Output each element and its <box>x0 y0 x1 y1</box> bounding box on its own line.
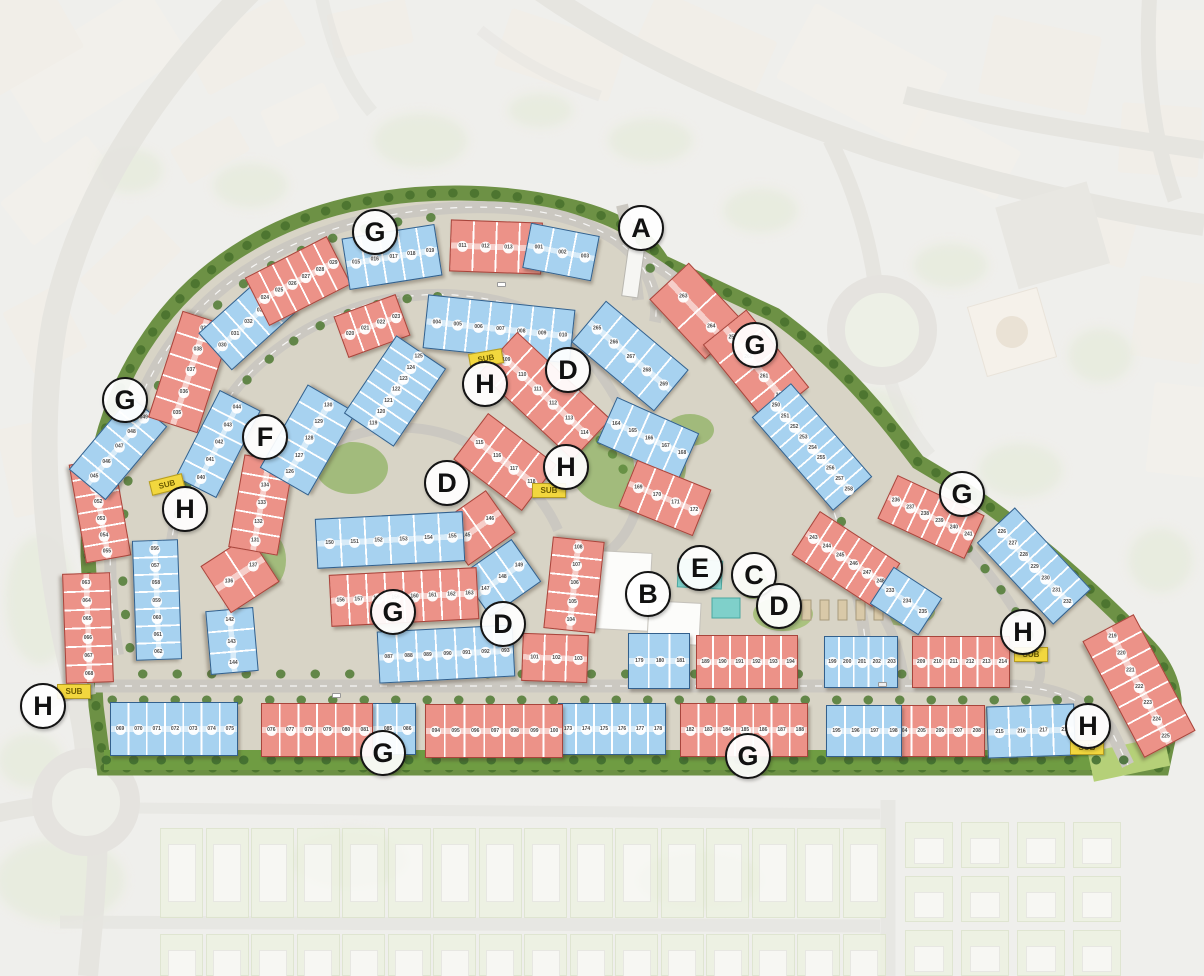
unit-number: 164 <box>611 418 622 429</box>
unit-number: 133 <box>256 499 267 510</box>
unit-number: 047 <box>113 442 124 453</box>
zone-badge-d-top: D <box>545 347 591 393</box>
unit-number: 192 <box>751 657 762 668</box>
unit-number: 096 <box>470 726 481 737</box>
unit-number: 058 <box>151 578 162 589</box>
unit-number: 266 <box>609 337 620 348</box>
unit-number: 195 <box>831 726 842 737</box>
unit-number: 107 <box>571 560 582 571</box>
unit-number: 155 <box>447 531 458 542</box>
zone-badge-d-center: D <box>480 601 526 647</box>
unit-number: 210 <box>932 657 943 668</box>
unit-number: 087 <box>383 651 394 662</box>
unit-number: 256 <box>825 463 836 474</box>
unit-number: 076 <box>266 725 277 736</box>
unit-number: 169 <box>633 482 644 493</box>
unit-number: 265 <box>592 323 603 334</box>
unit-number: 228 <box>1018 550 1029 561</box>
unit-number: 165 <box>627 426 638 437</box>
unit-number: 021 <box>360 323 371 334</box>
zone-badge-h-bottom-right: H <box>1065 703 1111 749</box>
unit-number: 114 <box>579 428 590 439</box>
unit-number: 171 <box>670 497 681 508</box>
unit-number: 091 <box>461 647 472 658</box>
car <box>332 693 341 698</box>
unit-number: 004 <box>431 317 442 328</box>
unit-number: 224 <box>1152 715 1163 726</box>
unit-number: 055 <box>102 547 113 558</box>
unit-number: 241 <box>963 529 974 540</box>
unit-number: 227 <box>1007 538 1018 549</box>
unit-number: 255 <box>816 453 827 464</box>
unit-number: 137 <box>247 560 258 571</box>
unit-number: 132 <box>252 517 263 528</box>
unit-number: 005 <box>452 319 463 330</box>
unit-number: 180 <box>655 656 666 667</box>
unit-number: 269 <box>658 379 669 390</box>
zone-badge-g-top: G <box>352 209 398 255</box>
unit-number: 065 <box>82 614 93 625</box>
building-block-094-100: 094095096097098099100 <box>425 704 563 758</box>
unit-number: 170 <box>651 489 662 500</box>
unit-number: 226 <box>996 526 1007 537</box>
unit-number: 198 <box>888 726 899 737</box>
unit-number: 010 <box>558 330 569 341</box>
unit-number: 066 <box>83 633 94 644</box>
unit-number: 201 <box>857 657 868 668</box>
building-block-150-155: 150151152153154155 <box>315 511 465 569</box>
zone-badge-d-mid-left: D <box>424 460 470 506</box>
unit-number: 245 <box>835 550 846 561</box>
unit-number: 163 <box>464 588 475 599</box>
unit-number: 233 <box>885 586 896 597</box>
unit-number: 106 <box>569 579 580 590</box>
zone-badge-e: E <box>677 545 723 591</box>
unit-number: 166 <box>643 433 654 444</box>
unit-number: 252 <box>789 421 800 432</box>
unit-number: 217 <box>1037 725 1048 736</box>
unit-number: 239 <box>934 515 945 526</box>
unit-number: 057 <box>150 561 161 572</box>
unit-number: 130 <box>322 400 333 411</box>
unit-number: 094 <box>430 726 441 737</box>
unit-number: 097 <box>490 726 501 737</box>
unit-number: 268 <box>642 365 653 376</box>
unit-number: 073 <box>188 724 199 735</box>
unit-number: 254 <box>807 442 818 453</box>
zone-badge-h-mid: H <box>543 444 589 490</box>
unit-number: 188 <box>794 725 805 736</box>
unit-number: 250 <box>771 401 782 412</box>
building-block-189-194: 189190191192193194 <box>696 635 798 689</box>
unit-number: 219 <box>1107 631 1118 642</box>
unit-number: 225 <box>1161 731 1172 742</box>
unit-number: 184 <box>721 725 732 736</box>
unit-number: 044 <box>231 403 242 414</box>
unit-number: 024 <box>259 292 270 303</box>
unit-number: 078 <box>303 725 314 736</box>
unit-number: 095 <box>450 726 461 737</box>
zone-badge-g-upper-right: G <box>732 322 778 368</box>
unit-number: 052 <box>93 497 104 508</box>
unit-number: 191 <box>734 657 745 668</box>
unit-number: 197 <box>869 726 880 737</box>
unit-number: 261 <box>759 371 770 382</box>
unit-number: 069 <box>115 724 126 735</box>
unit-number: 244 <box>821 541 832 552</box>
unit-number: 161 <box>427 590 438 601</box>
unit-number: 061 <box>153 630 164 641</box>
unit-number: 147 <box>479 584 490 595</box>
unit-number: 077 <box>285 725 296 736</box>
kids-pool <box>712 598 740 618</box>
unit-number: 041 <box>204 455 215 466</box>
unit-number: 214 <box>997 657 1008 668</box>
building-block-179-181: 179180181 <box>628 633 690 689</box>
unit-number: 134 <box>259 480 270 491</box>
unit-number: 029 <box>328 258 339 269</box>
unit-number: 156 <box>335 595 346 606</box>
unit-number: 126 <box>284 467 295 478</box>
unit-number: 027 <box>300 272 311 283</box>
unit-number: 173 <box>563 724 574 735</box>
unit-number: 207 <box>953 726 964 737</box>
unit-number: 148 <box>496 572 507 583</box>
unit-number: 237 <box>905 502 916 513</box>
building-block-076-081: 076077078079080081 <box>261 703 373 757</box>
unit-number: 022 <box>375 317 386 328</box>
unit-number: 009 <box>537 328 548 339</box>
unit-number: 162 <box>446 589 457 600</box>
unit-number: 181 <box>675 656 686 667</box>
unit-number: 199 <box>827 657 838 668</box>
unit-number: 172 <box>688 504 699 515</box>
unit-number: 111 <box>532 384 543 395</box>
unit-number: 168 <box>676 448 687 459</box>
unit-number: 105 <box>567 597 578 608</box>
unit-number: 028 <box>314 265 325 276</box>
unit-number: 030 <box>217 340 228 351</box>
unit-number: 231 <box>1051 585 1062 596</box>
unit-number: 079 <box>322 725 333 736</box>
unit-number: 045 <box>88 471 99 482</box>
building-block-056-062: 056057058059060061062 <box>132 539 182 661</box>
unit-number: 129 <box>313 417 324 428</box>
building-block-142-144: 142143144 <box>205 607 258 675</box>
unit-number: 149 <box>513 560 524 571</box>
zone-badge-b: B <box>625 571 671 617</box>
unit-number: 011 <box>457 240 468 251</box>
building-block-209-214: 209210211212213214 <box>912 636 1010 688</box>
unit-number: 209 <box>916 657 927 668</box>
unit-number: 012 <box>480 241 491 252</box>
unit-number: 247 <box>861 567 872 578</box>
unit-number: 177 <box>635 724 646 735</box>
unit-number: 230 <box>1040 573 1051 584</box>
zone-badge-g-left: G <box>102 377 148 423</box>
unit-number: 067 <box>83 651 94 662</box>
unit-number: 092 <box>480 646 491 657</box>
zone-badge-g-bottom-left: G <box>360 730 406 776</box>
zone-badge-h-bottom-left: H <box>20 683 66 729</box>
unit-number: 182 <box>685 725 696 736</box>
unit-number: 183 <box>703 725 714 736</box>
unit-number: 246 <box>848 558 859 569</box>
unit-number: 125 <box>413 351 424 362</box>
building-block-215-218: 215216217218 <box>986 703 1076 758</box>
unit-number: 113 <box>564 413 575 424</box>
unit-number: 229 <box>1029 561 1040 572</box>
unit-number: 119 <box>368 418 379 429</box>
unit-number: 023 <box>391 312 402 323</box>
unit-number: 054 <box>99 530 110 541</box>
unit-number: 056 <box>150 544 161 555</box>
building-block-195-198: 195196197198 <box>826 705 902 757</box>
unit-number: 206 <box>935 726 946 737</box>
unit-number: 093 <box>500 645 511 656</box>
unit-number: 108 <box>572 542 583 553</box>
unit-number: 121 <box>383 396 394 407</box>
zone-badge-g-right: G <box>939 471 985 517</box>
unit-number: 251 <box>780 411 791 422</box>
unit-number: 154 <box>422 533 433 544</box>
unit-number: 025 <box>273 285 284 296</box>
unit-number: 175 <box>599 724 610 735</box>
building-block-101-103: 101102103 <box>521 633 589 683</box>
unit-number: 015 <box>350 257 361 268</box>
unit-number: 122 <box>390 385 401 396</box>
unit-number: 088 <box>403 650 414 661</box>
unit-number: 123 <box>398 374 409 385</box>
unit-number: 263 <box>678 291 689 302</box>
unit-number: 267 <box>625 351 636 362</box>
unit-number: 086 <box>402 724 413 735</box>
unit-number: 179 <box>634 656 645 667</box>
unit-number: 187 <box>776 725 787 736</box>
unit-number: 128 <box>303 434 314 445</box>
unit-number: 202 <box>871 657 882 668</box>
building-block-104-108: 104105106107108 <box>543 537 604 634</box>
unit-number: 193 <box>768 657 779 668</box>
unit-number: 208 <box>971 726 982 737</box>
unit-number: 176 <box>617 724 628 735</box>
unit-number: 020 <box>344 329 355 340</box>
unit-number: 040 <box>195 473 206 484</box>
unit-number: 042 <box>213 438 224 449</box>
site-plan-map: 0500510520530540550630640650660670680560… <box>0 0 1204 976</box>
unit-number: 001 <box>534 242 545 253</box>
unit-number: 059 <box>152 595 163 606</box>
unit-number: 186 <box>758 725 769 736</box>
building-block-069-075: 069070071072073074075 <box>110 702 238 756</box>
unit-number: 142 <box>225 615 236 626</box>
unit-number: 235 <box>918 607 929 618</box>
unit-number: 013 <box>503 242 514 253</box>
car <box>878 682 887 687</box>
unit-number: 048 <box>125 427 136 438</box>
building-block-199-203: 199200201202203 <box>824 636 898 688</box>
unit-number: 018 <box>406 248 417 259</box>
zone-badge-f: F <box>242 414 288 460</box>
unit-number: 063 <box>81 578 92 589</box>
unit-number: 143 <box>227 636 238 647</box>
unit-number: 035 <box>171 408 182 419</box>
unit-number: 117 <box>509 464 520 475</box>
unit-number: 240 <box>948 522 959 533</box>
unit-number: 232 <box>1062 596 1073 607</box>
unit-number: 223 <box>1143 698 1154 709</box>
unit-number: 062 <box>153 647 164 658</box>
unit-number: 101 <box>529 652 540 663</box>
unit-number: 026 <box>287 279 298 290</box>
unit-number: 070 <box>133 724 144 735</box>
unit-number: 153 <box>398 534 409 545</box>
unit-number: 019 <box>425 245 436 256</box>
zone-badge-g-bottom-right: G <box>725 733 771 779</box>
unit-number: 220 <box>1116 648 1127 659</box>
unit-number: 136 <box>223 576 234 587</box>
unit-number: 127 <box>293 450 304 461</box>
building-block-204-208: 204205206207208 <box>893 705 985 757</box>
unit-number: 124 <box>405 362 416 373</box>
unit-number: 017 <box>387 251 398 262</box>
unit-number: 038 <box>192 344 203 355</box>
unit-number: 072 <box>170 724 181 735</box>
unit-number: 032 <box>242 317 253 328</box>
unit-number: 110 <box>517 369 528 380</box>
building-block-063-068: 063064065066067068 <box>62 572 114 684</box>
unit-number: 003 <box>579 251 590 262</box>
unit-number: 006 <box>473 321 484 332</box>
unit-number: 200 <box>842 657 853 668</box>
unit-number: 194 <box>785 657 796 668</box>
unit-number: 215 <box>994 727 1005 738</box>
unit-number: 016 <box>369 254 380 265</box>
unit-number: 152 <box>373 535 384 546</box>
zone-badge-a: A <box>618 205 664 251</box>
zone-badge-g-center: G <box>370 589 416 635</box>
unit-number: 243 <box>808 532 819 543</box>
unit-number: 102 <box>550 653 561 664</box>
unit-number: 064 <box>82 596 93 607</box>
unit-number: 222 <box>1134 681 1145 692</box>
unit-number: 167 <box>660 440 671 451</box>
unit-number: 068 <box>84 669 95 680</box>
unit-number: 100 <box>549 726 560 737</box>
unit-number: 060 <box>152 613 163 624</box>
unit-number: 131 <box>249 536 260 547</box>
unit-number: 099 <box>529 726 540 737</box>
unit-number: 234 <box>901 596 912 607</box>
car <box>497 282 506 287</box>
unit-number: 036 <box>178 387 189 398</box>
zone-badge-h-right: H <box>1000 609 1046 655</box>
unit-number: 071 <box>151 724 162 735</box>
unit-number: 196 <box>850 726 861 737</box>
unit-number: 157 <box>353 594 364 605</box>
unit-number: 205 <box>916 726 927 737</box>
unit-number: 103 <box>572 653 583 664</box>
unit-number: 212 <box>965 657 976 668</box>
zone-badge-d-right: D <box>756 583 802 629</box>
unit-number: 112 <box>548 398 559 409</box>
building-block-173-178: 173174175176177178 <box>558 703 666 755</box>
zone-badge-h-left: H <box>162 486 208 532</box>
unit-number: 046 <box>101 456 112 467</box>
unit-number: 089 <box>422 649 433 660</box>
unit-number: 098 <box>509 726 520 737</box>
unit-number: 257 <box>834 473 845 484</box>
unit-number: 236 <box>890 495 901 506</box>
unit-number: 002 <box>556 247 567 258</box>
unit-number: 189 <box>700 657 711 668</box>
unit-number: 203 <box>886 657 897 668</box>
unit-number: 258 <box>843 484 854 495</box>
unit-number: 211 <box>948 657 959 668</box>
unit-number: 037 <box>185 366 196 377</box>
unit-number: 053 <box>96 514 107 525</box>
unit-number: 253 <box>798 432 809 443</box>
unit-number: 264 <box>706 321 717 332</box>
unit-number: 043 <box>222 420 233 431</box>
unit-number: 007 <box>494 324 505 335</box>
unit-number: 146 <box>484 514 495 525</box>
unit-number: 221 <box>1125 665 1136 676</box>
unit-number: 174 <box>581 724 592 735</box>
unit-number: 075 <box>224 724 235 735</box>
unit-number: 150 <box>324 538 335 549</box>
unit-number: 074 <box>206 724 217 735</box>
unit-number: 190 <box>717 657 728 668</box>
unit-number: 144 <box>228 658 239 669</box>
unit-number: 120 <box>375 407 386 418</box>
unit-number: 090 <box>441 648 452 659</box>
zone-badge-h-top: H <box>462 361 508 407</box>
unit-number: 116 <box>492 451 503 462</box>
unit-number: 216 <box>1016 726 1027 737</box>
unit-number: 104 <box>565 615 576 626</box>
unit-number: 151 <box>349 536 360 547</box>
unit-number: 178 <box>653 724 664 735</box>
unit-number: 031 <box>229 328 240 339</box>
unit-number: 213 <box>981 657 992 668</box>
unit-number: 238 <box>919 509 930 520</box>
unit-number: 080 <box>341 725 352 736</box>
unit-number: 115 <box>475 438 486 449</box>
